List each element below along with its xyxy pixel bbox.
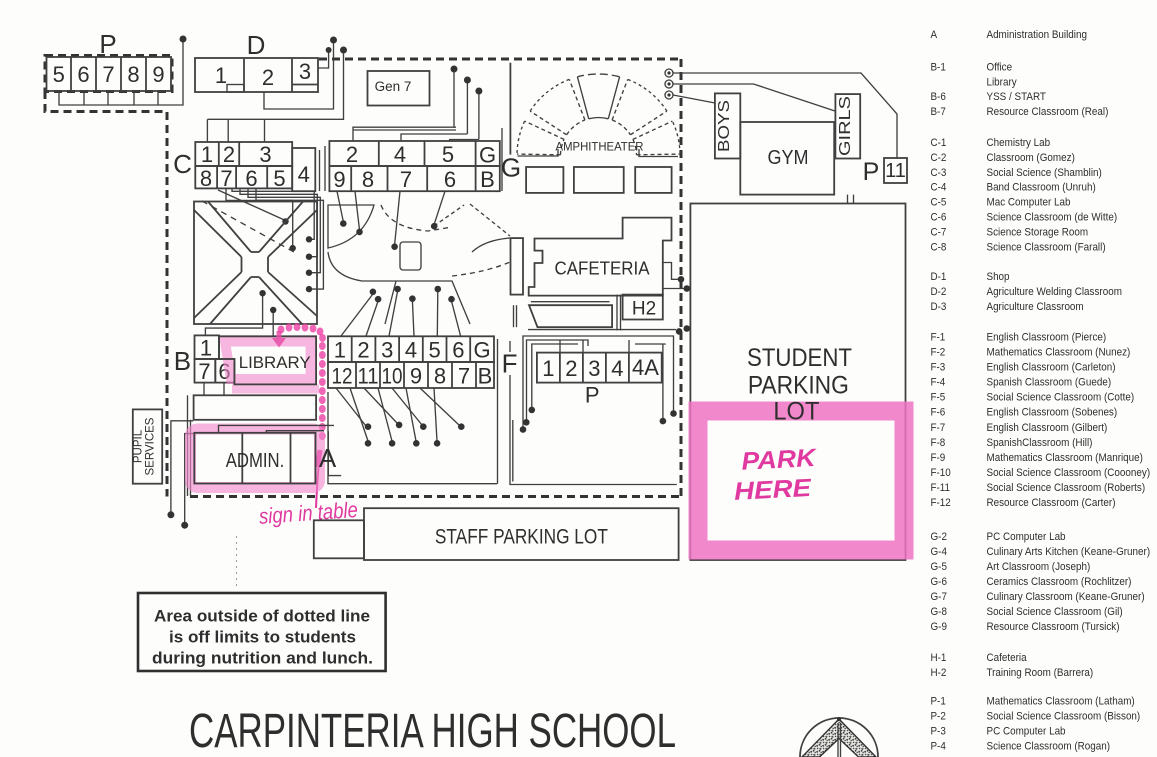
svg-text:Social Science Classroom (Gil): Social Science Classroom (Gil) [986,605,1122,618]
svg-text:G: G [501,153,521,183]
svg-text:P: P [863,158,880,186]
svg-text:sign in table: sign in table [258,497,359,529]
svg-text:English Classroom (Sobenes): English Classroom (Sobenes) [986,406,1117,419]
svg-text:Spanish Classroom (Guede): Spanish Classroom (Guede) [986,376,1111,389]
svg-text:G-9: G-9 [930,620,947,633]
svg-text:C-8: C-8 [930,241,946,254]
svg-text:Mac Computer Lab: Mac Computer Lab [986,196,1070,209]
svg-text:1: 1 [334,338,346,363]
svg-text:G: G [474,338,491,363]
svg-text:C-6: C-6 [930,211,946,224]
svg-text:Administration Building: Administration Building [986,28,1087,41]
svg-text:10: 10 [382,364,403,389]
svg-text:Library: Library [986,76,1017,89]
svg-text:Science Classroom (Rogan): Science Classroom (Rogan) [986,740,1110,753]
svg-text:P: P [585,383,600,408]
svg-text:English Classroom (Pierce): English Classroom (Pierce) [986,331,1106,344]
svg-text:Agriculture Classroom: Agriculture Classroom [986,300,1083,313]
svg-text:G: G [479,143,496,168]
svg-text:G-8: G-8 [930,605,947,618]
svg-text:9: 9 [410,364,422,389]
svg-text:CAFETERIA: CAFETERIA [555,259,650,279]
svg-text:F-12: F-12 [930,496,950,509]
svg-text:F: F [502,349,518,379]
svg-text:F-5: F-5 [930,391,945,404]
svg-text:BOYS: BOYS [716,100,733,152]
svg-text:Science Classroom (de Witte): Science Classroom (de Witte) [986,211,1117,224]
svg-text:Mathematics Classroom (Nunez): Mathematics Classroom (Nunez) [986,346,1130,359]
svg-text:B-6: B-6 [930,90,945,103]
svg-text:P-1: P-1 [930,695,945,708]
svg-text:8: 8 [434,364,446,389]
svg-text:1: 1 [542,356,554,381]
svg-text:English Classroom (Carleton): English Classroom (Carleton) [986,361,1115,374]
svg-text:Culinary Arts Kitchen (Keane-G: Culinary Arts Kitchen (Keane-Gruner) [986,545,1150,558]
svg-text:G-7: G-7 [930,590,947,603]
svg-text:7: 7 [220,166,232,191]
svg-text:C-1: C-1 [930,136,946,149]
svg-text:A: A [319,443,337,473]
svg-text:Science Classroom (Farall): Science Classroom (Farall) [986,241,1105,254]
svg-text:6: 6 [245,166,257,191]
svg-text:Band Classroom (Unruh): Band Classroom (Unruh) [986,181,1095,194]
svg-text:4: 4 [298,162,310,187]
svg-text:F-10: F-10 [930,466,950,479]
svg-text:6: 6 [452,338,464,363]
svg-text:GIRLS: GIRLS [837,96,854,156]
svg-text:Mathematics Classroom (Manriqu: Mathematics Classroom (Manrique) [986,451,1142,464]
svg-text:H-2: H-2 [930,666,946,679]
svg-text:during nutrition and lunch.: during nutrition and lunch. [152,649,373,668]
svg-text:8: 8 [362,167,374,192]
svg-text:Gen 7: Gen 7 [375,79,412,94]
svg-text:STUDENT: STUDENT [747,344,852,372]
svg-text:G-6: G-6 [930,575,947,588]
svg-text:CARPINTERIA HIGH SCHOOL: CARPINTERIA HIGH SCHOOL [189,705,676,757]
svg-text:4: 4 [405,338,417,363]
svg-text:Cafeteria: Cafeteria [986,651,1026,664]
svg-text:Chemistry Lab: Chemistry Lab [986,136,1050,149]
svg-text:PARK: PARK [741,444,818,476]
svg-text:2: 2 [346,142,358,167]
svg-text:1: 1 [200,336,212,361]
svg-text:Art Classroom (Joseph): Art Classroom (Joseph) [986,560,1090,573]
svg-text:3: 3 [299,59,311,84]
svg-text:Ceramics Classroom (Rochlitzer: Ceramics Classroom (Rochlitzer) [986,575,1131,588]
svg-text:Resource Classroom (Real): Resource Classroom (Real) [986,105,1108,118]
svg-text:Mathematics Classroom (Latham): Mathematics Classroom (Latham) [986,695,1134,708]
svg-text:8: 8 [200,166,212,191]
svg-text:F-2: F-2 [930,346,945,359]
svg-text:3: 3 [381,338,393,363]
svg-text:SpanishClassroom (Hill): SpanishClassroom (Hill) [986,436,1092,449]
svg-text:P-2: P-2 [930,710,945,723]
svg-text:5: 5 [429,338,441,363]
svg-text:HERE: HERE [733,474,813,506]
svg-text:8: 8 [127,62,139,87]
svg-text:3: 3 [259,142,271,167]
svg-text:C-3: C-3 [930,166,946,179]
svg-text:2: 2 [565,356,577,381]
svg-text:GYM: GYM [768,147,809,169]
svg-text:Social Science Classroom (Robe: Social Science Classroom (Roberts) [986,481,1145,494]
svg-text:5: 5 [273,166,285,191]
svg-text:B: B [478,364,493,389]
svg-text:P-3: P-3 [930,725,945,738]
svg-text:B: B [480,167,495,192]
svg-text:Social Science Classroom (Cooo: Social Science Classroom (Coooney) [986,466,1150,479]
svg-text:C: C [173,149,192,179]
svg-text:B: B [174,346,191,376]
svg-text:7: 7 [198,359,210,384]
svg-text:7: 7 [458,364,470,389]
svg-text:G-5: G-5 [930,560,947,573]
svg-text:P: P [99,29,116,59]
svg-text:F-3: F-3 [930,361,945,374]
svg-text:YSS / START: YSS / START [986,90,1046,103]
svg-text:PARKING: PARKING [748,372,849,400]
svg-text:A: A [930,28,937,41]
svg-text:Classroom (Gomez): Classroom (Gomez) [986,151,1074,164]
svg-text:Area outside of dotted line: Area outside of dotted line [154,607,370,626]
svg-text:LIBRARY: LIBRARY [239,353,311,372]
svg-text:Culinary Classroom (Keane-Grun: Culinary Classroom (Keane-Gruner) [986,590,1144,603]
svg-text:B-1: B-1 [930,61,945,74]
svg-text:Agriculture Welding Classroom: Agriculture Welding Classroom [986,285,1122,298]
svg-text:11: 11 [885,160,906,182]
svg-text:F-11: F-11 [930,481,950,494]
svg-text:12: 12 [332,364,353,389]
svg-text:STAFF PARKING LOT: STAFF PARKING LOT [435,526,608,549]
svg-text:Resource Classroom (Carter): Resource Classroom (Carter) [986,496,1115,509]
svg-text:D-2: D-2 [930,285,946,298]
svg-text:6: 6 [77,62,89,87]
svg-text:2: 2 [357,338,369,363]
svg-text:5: 5 [53,62,65,87]
svg-text:PUPIL: PUPIL [133,429,145,463]
svg-text:Shop: Shop [986,270,1009,283]
svg-text:6: 6 [444,167,456,192]
svg-text:3: 3 [588,356,600,381]
svg-text:F-4: F-4 [930,376,945,389]
svg-text:7: 7 [400,167,412,192]
svg-text:1: 1 [215,63,227,88]
svg-text:C-7: C-7 [930,226,946,239]
svg-text:11: 11 [358,364,379,389]
svg-text:F-7: F-7 [930,421,945,434]
svg-text:H-1: H-1 [930,651,946,664]
svg-text:9: 9 [152,62,164,87]
svg-text:Social Science (Shamblin): Social Science (Shamblin) [986,166,1101,179]
svg-text:P-4: P-4 [930,740,945,753]
svg-text:F-8: F-8 [930,436,945,449]
svg-text:4: 4 [394,142,406,167]
svg-text:Training Room (Barrera): Training Room (Barrera) [986,666,1093,679]
svg-text:C-4: C-4 [930,181,946,194]
svg-text:2: 2 [223,142,235,167]
svg-text:Science Storage Room: Science Storage Room [986,226,1088,239]
svg-text:AMPHITHEATER: AMPHITHEATER [556,142,644,154]
svg-text:LOT: LOT [773,398,819,426]
svg-text:Office: Office [986,61,1012,74]
svg-text:G-2: G-2 [930,530,947,543]
svg-text:SERVICES: SERVICES [145,417,157,475]
svg-text:ADMIN.: ADMIN. [226,450,285,472]
svg-text:G-4: G-4 [930,545,947,558]
svg-text:Social Science Classroom (Biss: Social Science Classroom (Bisson) [986,710,1140,723]
svg-text:C-2: C-2 [930,151,946,164]
svg-text:D: D [247,30,266,60]
svg-text:PC Computer Lab: PC Computer Lab [986,530,1065,543]
svg-text:C-5: C-5 [930,196,946,209]
svg-text:Resource Classroom (Tursick): Resource Classroom (Tursick) [986,620,1119,633]
svg-text:PC Computer Lab: PC Computer Lab [986,725,1065,738]
svg-text:is off limits to students: is off limits to students [169,628,356,647]
svg-text:F-9: F-9 [930,451,945,464]
svg-text:H2: H2 [632,299,656,320]
svg-text:D-3: D-3 [930,300,946,313]
svg-text:4A: 4A [632,355,659,380]
svg-text:5: 5 [442,142,454,167]
svg-text:2: 2 [262,65,274,90]
svg-text:7: 7 [102,62,114,87]
svg-text:Social Science Classroom (Cott: Social Science Classroom (Cotte) [986,391,1134,404]
svg-text:1: 1 [201,142,213,167]
svg-text:B-7: B-7 [930,105,945,118]
svg-text:4: 4 [611,356,623,381]
svg-text:F-6: F-6 [930,406,945,419]
svg-text:English Classroom (Gilbert): English Classroom (Gilbert) [986,421,1107,434]
svg-text:9: 9 [333,167,345,192]
svg-text:F-1: F-1 [930,331,945,344]
svg-text:D-1: D-1 [930,270,946,283]
